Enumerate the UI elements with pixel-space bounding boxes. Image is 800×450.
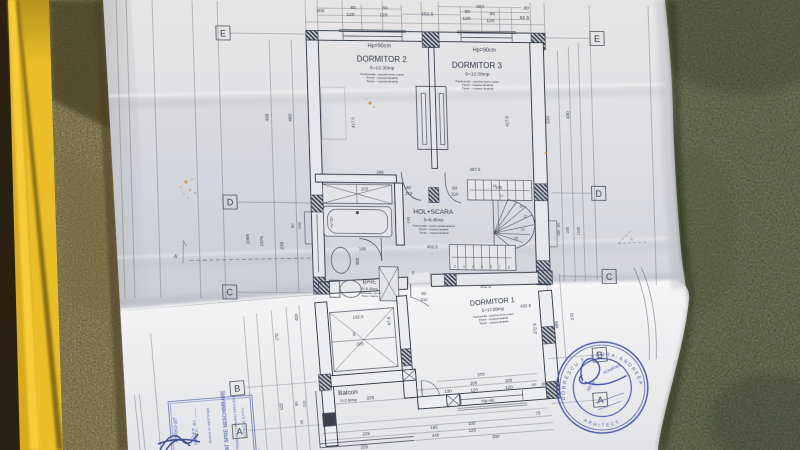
svg-text:120: 120	[505, 385, 513, 391]
svg-text:Hp=110: Hp=110	[329, 216, 333, 227]
svg-text:1095: 1095	[245, 234, 251, 245]
svg-text:205: 205	[361, 187, 369, 192]
svg-text:100: 100	[505, 378, 513, 384]
svg-text:DORMITOR 3: DORMITOR 3	[452, 61, 503, 71]
svg-text:S=12.00mp: S=12.00mp	[465, 71, 490, 77]
svg-text:152.5: 152.5	[421, 11, 434, 17]
svg-text:80: 80	[490, 11, 496, 17]
svg-text:8: 8	[508, 265, 510, 269]
svg-text:300: 300	[476, 4, 485, 10]
svg-text:225: 225	[367, 395, 375, 401]
svg-text:40: 40	[532, 383, 537, 387]
svg-text:225: 225	[362, 431, 370, 437]
svg-text:210: 210	[420, 297, 428, 302]
svg-text:225: 225	[360, 444, 368, 450]
svg-text:Tavan - vopsea lavabila: Tavan - vopsea lavabila	[367, 79, 399, 83]
svg-text:7: 7	[499, 265, 501, 269]
svg-text:100: 100	[297, 222, 302, 230]
svg-text:115: 115	[279, 403, 285, 411]
svg-text:Hp=90: Hp=90	[481, 397, 495, 403]
svg-text:12: 12	[523, 215, 527, 219]
svg-text:B: B	[234, 383, 241, 393]
svg-text:370: 370	[477, 372, 485, 378]
svg-text:S=12.30mp: S=12.30mp	[370, 65, 395, 71]
svg-text:300: 300	[355, 257, 360, 265]
svg-text:430: 430	[565, 111, 570, 119]
svg-text:80: 80	[523, 6, 529, 12]
svg-text:80: 80	[465, 9, 471, 15]
svg-text:4: 4	[472, 265, 474, 269]
svg-text:130: 130	[444, 388, 452, 394]
svg-text:287.5: 287.5	[470, 167, 482, 172]
svg-text:180: 180	[557, 230, 561, 236]
svg-text:80: 80	[452, 186, 458, 191]
svg-text:Hp=90cm: Hp=90cm	[368, 43, 392, 49]
svg-text:13: 13	[521, 227, 525, 231]
svg-text:210: 210	[451, 192, 459, 197]
svg-text:185: 185	[495, 185, 503, 190]
svg-text:A: A	[630, 237, 633, 242]
svg-text:295: 295	[376, 170, 384, 175]
svg-text:35: 35	[300, 420, 304, 425]
svg-text:2: 2	[454, 265, 456, 269]
svg-text:417.5: 417.5	[350, 116, 355, 127]
svg-text:120: 120	[470, 387, 478, 393]
svg-text:210: 210	[405, 191, 413, 196]
svg-text:17: 17	[500, 194, 504, 198]
svg-text:120: 120	[486, 18, 495, 24]
svg-text:D: D	[227, 197, 234, 207]
svg-text:235: 235	[566, 227, 570, 233]
svg-text:DORMITOR 2: DORMITOR 2	[357, 55, 408, 65]
svg-text:Tavan - vopsea lavabila: Tavan - vopsea lavabila	[419, 231, 449, 235]
svg-text:80: 80	[421, 291, 427, 296]
svg-text:530: 530	[545, 116, 550, 124]
svg-text:120: 120	[462, 16, 471, 22]
svg-text:(85): (85)	[541, 382, 549, 387]
svg-text:C: C	[226, 287, 233, 297]
svg-text:430: 430	[264, 113, 269, 121]
svg-text:417.5: 417.5	[504, 115, 509, 126]
svg-text:180: 180	[359, 247, 367, 252]
svg-text:87.5: 87.5	[386, 316, 392, 325]
svg-text:80: 80	[382, 5, 388, 11]
svg-text:BAIE: BAIE	[363, 280, 377, 286]
svg-text:120: 120	[346, 12, 355, 18]
svg-text:6: 6	[490, 265, 492, 269]
svg-text:92.5: 92.5	[520, 15, 530, 21]
svg-text:1075: 1075	[259, 236, 265, 247]
svg-text:C: C	[606, 272, 613, 282]
svg-text:120: 120	[468, 428, 476, 434]
svg-text:372.5: 372.5	[532, 322, 538, 334]
svg-text:E: E	[220, 28, 226, 38]
svg-text:270: 270	[274, 333, 280, 341]
svg-text:485: 485	[554, 321, 560, 329]
svg-text:Hp=90cm: Hp=90cm	[473, 47, 497, 53]
svg-text:80: 80	[557, 223, 561, 227]
svg-text:420: 420	[294, 313, 300, 321]
svg-text:100: 100	[470, 380, 478, 386]
svg-text:192.5: 192.5	[352, 314, 364, 320]
svg-text:HOL+SCARA: HOL+SCARA	[413, 209, 454, 216]
svg-text:15: 15	[514, 236, 518, 240]
svg-text:5: 5	[481, 265, 483, 269]
svg-text:480: 480	[287, 113, 292, 121]
svg-text:100: 100	[468, 421, 476, 427]
svg-text:Pereti - faianta: Pereti - faianta	[362, 295, 379, 298]
svg-text:402.5: 402.5	[427, 244, 439, 249]
svg-text:120: 120	[379, 12, 388, 18]
svg-text:302.5: 302.5	[480, 284, 492, 289]
svg-text:300: 300	[492, 434, 500, 440]
svg-text:3: 3	[463, 265, 465, 269]
svg-text:225: 225	[356, 341, 364, 347]
svg-text:Tavan - vopsea lavabila: Tavan - vopsea lavabila	[462, 86, 494, 90]
svg-text:E: E	[594, 34, 600, 44]
svg-text:80: 80	[406, 185, 412, 190]
svg-text:165: 165	[430, 425, 438, 431]
svg-text:440: 440	[432, 432, 440, 438]
svg-text:80: 80	[350, 5, 356, 11]
svg-text:235: 235	[279, 241, 285, 249]
svg-text:402.5: 402.5	[520, 303, 532, 309]
svg-text:210: 210	[301, 400, 307, 408]
svg-text:A': A'	[174, 254, 179, 260]
svg-text:D: D	[595, 189, 602, 199]
svg-text:190: 190	[405, 216, 410, 224]
svg-text:100: 100	[316, 8, 325, 14]
svg-text:S=8.45mp: S=8.45mp	[423, 217, 444, 222]
svg-text:11: 11	[519, 204, 523, 208]
svg-text:270: 270	[569, 312, 575, 320]
svg-text:1095: 1095	[577, 227, 581, 235]
svg-text:S=5.30mp: S=5.30mp	[361, 287, 378, 291]
